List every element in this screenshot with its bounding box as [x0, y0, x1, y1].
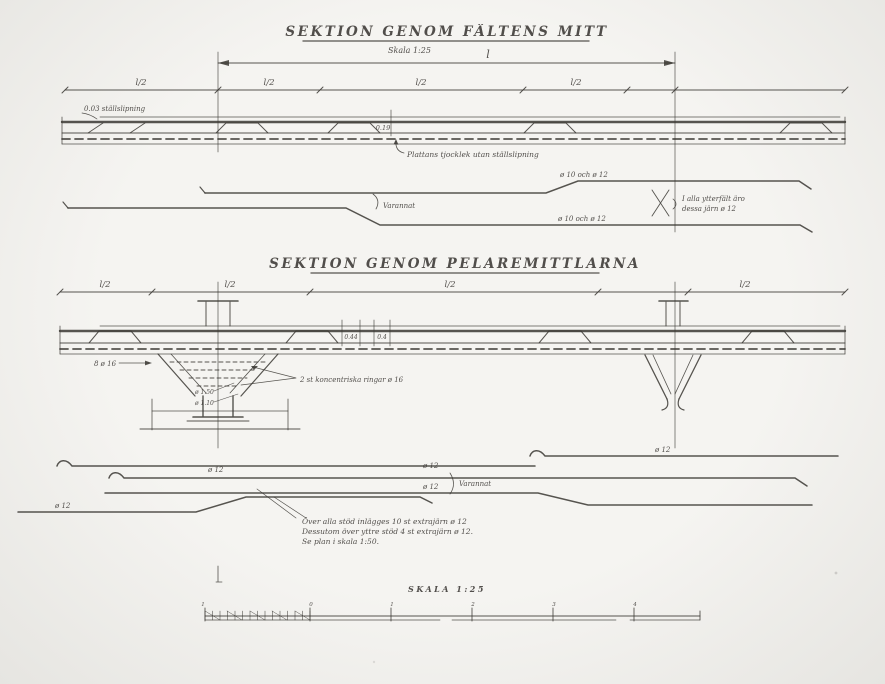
photo-speck: [835, 572, 838, 575]
rebar-label-right: ø 12: [654, 446, 671, 454]
section1-seg-dim-1: l/2: [136, 78, 147, 88]
rebar-label-left: ø 12: [207, 466, 224, 474]
section1-seg-dim-4: l/2: [571, 78, 582, 88]
ruler-label-4: 4: [632, 602, 637, 608]
ruler-label-2: 2: [470, 602, 475, 608]
outer-span-note-line2: dessa järn ø 12: [682, 205, 737, 213]
section1-span-dim: l: [486, 48, 490, 61]
slab-dim-left: 0.44: [344, 334, 358, 341]
column-diameter-upper: ø 1.50: [194, 389, 214, 396]
extra-bars-note-line2: Dessutom över yttre stöd 4 st extrajärn …: [301, 527, 473, 536]
blueprint-photo: SEKTION GENOM FÄLTENS MITT Skala 1:25 l …: [0, 0, 885, 684]
ruler-label-left: 1: [201, 602, 205, 608]
ruler-label-3: 3: [552, 602, 556, 608]
ruler-label-zero: 0: [309, 602, 313, 608]
extra-bars-note-line3: Se plan i skala 1:50.: [302, 537, 379, 546]
slab-thickness-note: Plattans tjocklek utan ställslipning: [406, 150, 539, 159]
photo-speck: [373, 661, 375, 663]
alternate-bars-label-1: Varannat: [383, 202, 415, 210]
rebar-top-size-label: ø 10 och ø 12: [559, 171, 608, 179]
rebar-label-mid-top: ø 12: [422, 462, 439, 470]
scale-bar-label: SKALA 1:25: [408, 584, 486, 594]
slab-dim-right: 0.4: [377, 334, 387, 341]
section2-seg-dim-1: l/2: [100, 280, 111, 290]
section2-seg-dim-3: l/2: [445, 280, 456, 290]
section2-title: SEKTION GENOM PELAREMITTLARNA: [269, 256, 641, 272]
slab-thickness-dim: 0.19: [376, 124, 390, 132]
section1-title: SEKTION GENOM FÄLTENS MITT: [285, 24, 608, 40]
rebar-label-far-left: ø 12: [54, 502, 71, 510]
alternate-bars-label-2: Varannat: [459, 480, 491, 488]
rebar-label-mid-bottom: ø 12: [422, 483, 439, 491]
section2-seg-dim-4: l/2: [740, 280, 751, 290]
scale-bar-linework: [205, 608, 700, 621]
column-diameter-lower: ø 1.10: [194, 400, 214, 407]
section1-seg-dim-3: l/2: [416, 78, 427, 88]
surface-layer-label: 0.03 ställslipning: [84, 105, 146, 113]
section1-seg-dim-2: l/2: [264, 78, 275, 88]
rebar-bottom-size-label: ø 10 och ø 12: [557, 215, 606, 223]
bridge-section-drawing: SEKTION GENOM FÄLTENS MITT Skala 1:25 l …: [0, 0, 885, 684]
section2-seg-dim-2: l/2: [225, 280, 236, 290]
ruler-label-1: 1: [390, 602, 394, 608]
concentric-rings-label: 2 st koncentriska ringar ø 16: [299, 376, 404, 384]
section1-scale-note: Skala 1:25: [388, 46, 431, 55]
outer-span-note-line1: I alla ytterfält äro: [681, 195, 745, 203]
column-bars-label: 8 ø 16: [94, 360, 117, 368]
extra-bars-note-line1: Över alla stöd inlägges 10 st extrajärn …: [302, 517, 467, 526]
section1-linework: [62, 41, 848, 232]
